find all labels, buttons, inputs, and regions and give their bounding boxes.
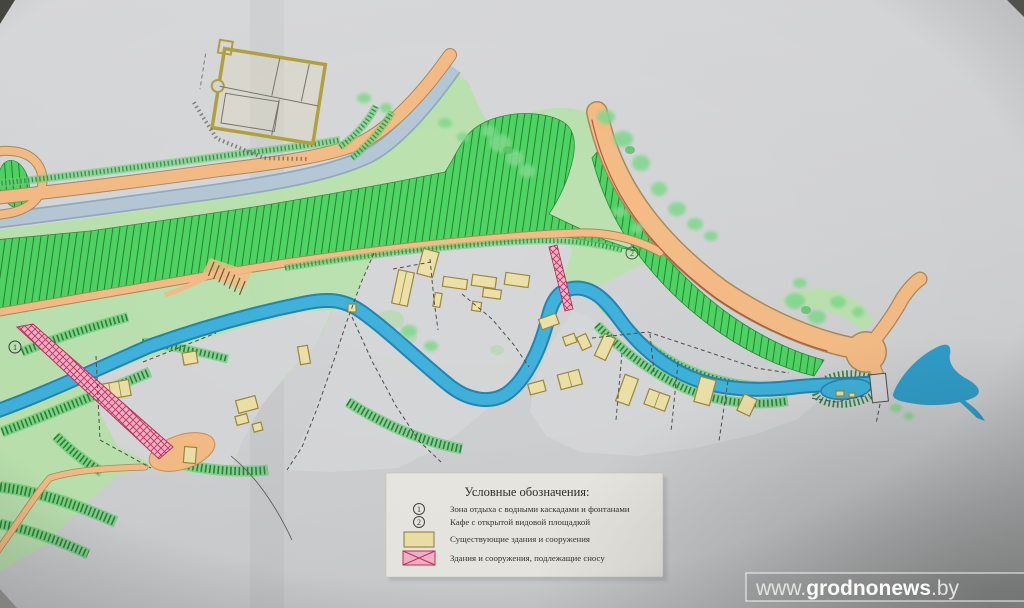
watermark: www.grodnonews.by <box>746 573 1024 601</box>
watermark-prefix: www. <box>755 577 806 600</box>
corner-shadow <box>0 0 1024 608</box>
watermark-suffix: .by <box>931 577 960 600</box>
watermark-brand: grodnonews <box>806 577 931 600</box>
plan-photo: 1 2 Условные обозначения: 1 Зона отдыха … <box>0 0 1024 608</box>
svg-text:www.grodnonews.by: www.grodnonews.by <box>755 577 960 600</box>
